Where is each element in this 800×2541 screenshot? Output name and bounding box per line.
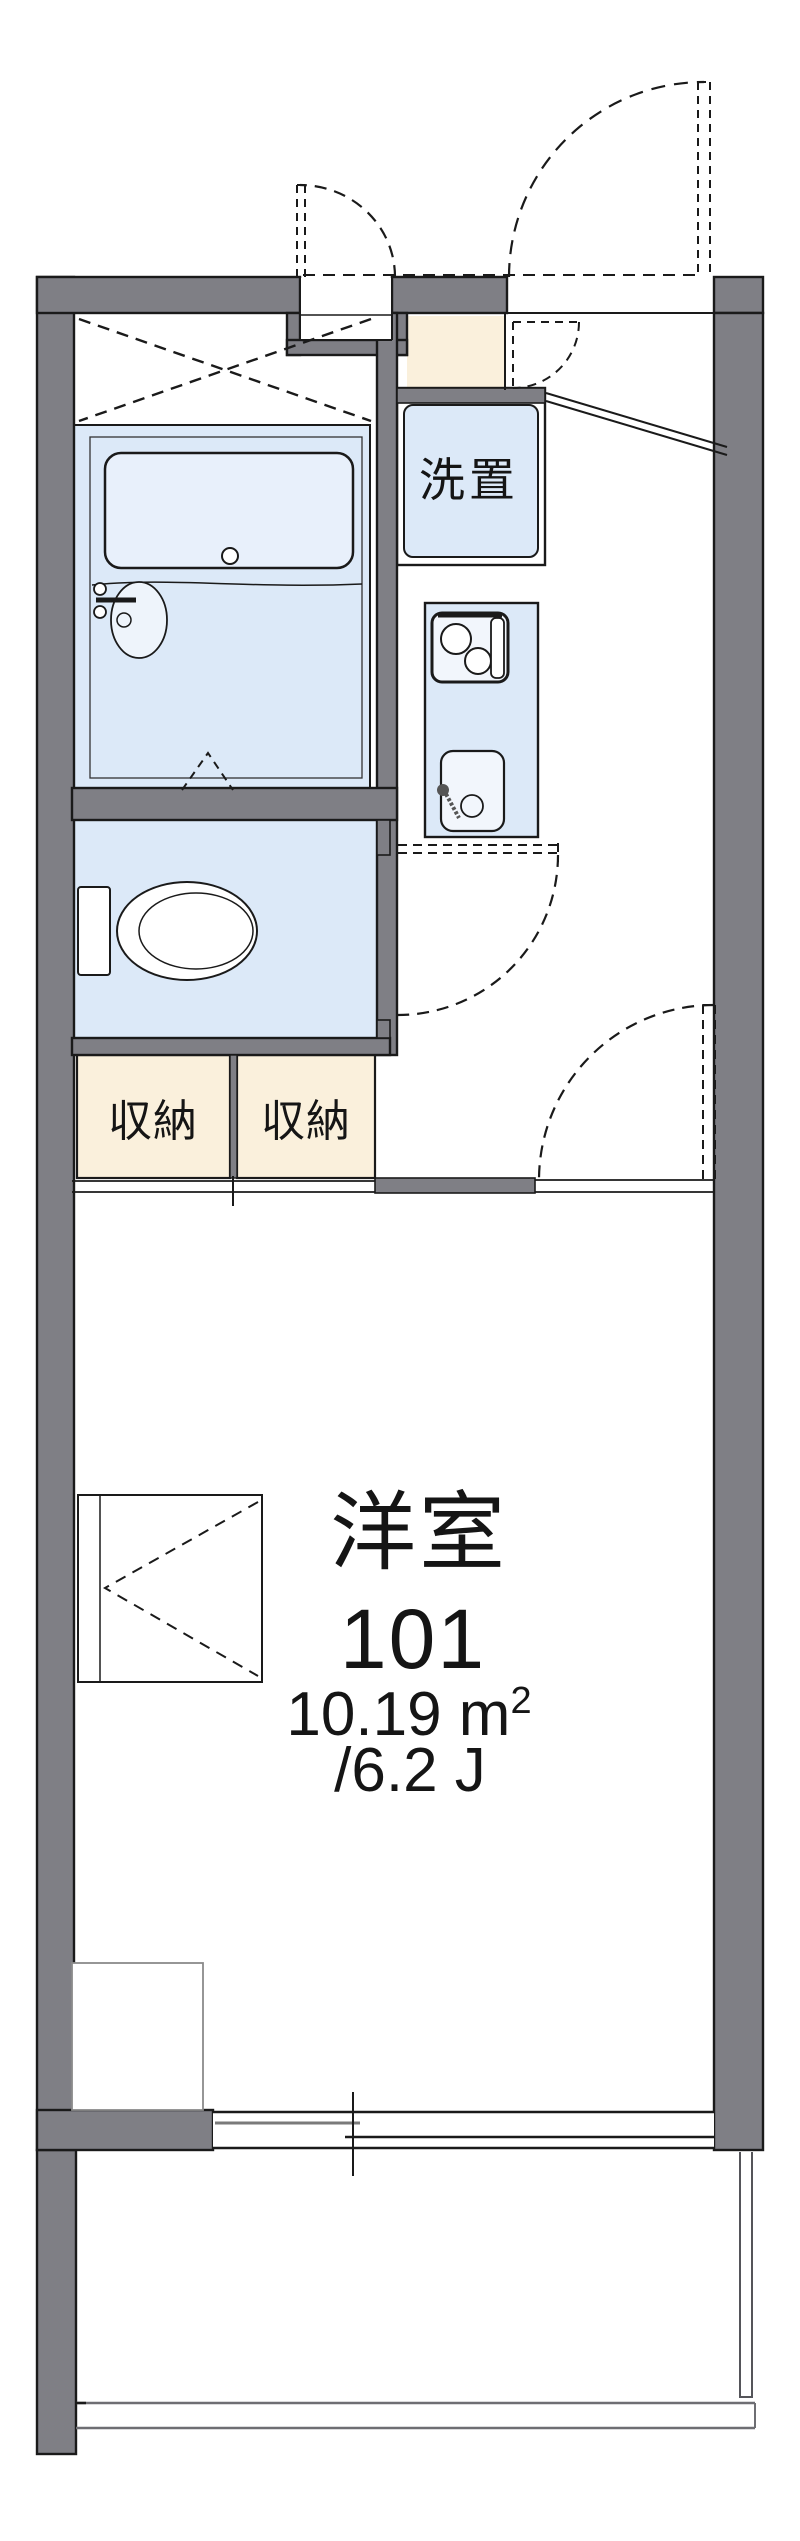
bathtub-drain bbox=[222, 548, 238, 564]
room-number-label: 101 bbox=[340, 1592, 486, 1686]
faucet-knob-top bbox=[94, 583, 106, 595]
wall-top-corner bbox=[714, 277, 763, 313]
wall-top-a bbox=[37, 277, 300, 313]
wall-right bbox=[714, 313, 763, 2150]
toilet-fixtures bbox=[78, 882, 257, 980]
wall-room-top bbox=[375, 1178, 535, 1193]
wall-bath-toilet bbox=[72, 788, 397, 820]
niche-slot bbox=[300, 278, 392, 340]
wall-bottom bbox=[37, 2110, 213, 2150]
kitchen-sink bbox=[441, 751, 504, 831]
storage-label-right: 収納 bbox=[261, 1097, 351, 1146]
stove-burner-small bbox=[465, 648, 491, 674]
room-type-label: 洋室 bbox=[330, 1485, 508, 1581]
wall-toilet-storage bbox=[72, 1038, 390, 1055]
floorplan-page: 洗置 収納 収納 洋室 101 10.19 m2 /6.2 J bbox=[0, 0, 800, 2541]
wall-balcony-left bbox=[37, 2150, 76, 2454]
wall-washer-top-band bbox=[397, 388, 545, 403]
background bbox=[0, 0, 800, 2541]
wall-toilet-jamb-top bbox=[377, 820, 390, 855]
toilet-tank bbox=[78, 887, 110, 975]
stove-burner-large bbox=[441, 624, 471, 654]
washbasin bbox=[111, 582, 167, 658]
stove-grill bbox=[491, 618, 504, 678]
room-area-sqm-superscript: 2 bbox=[510, 1680, 531, 1722]
wall-storage-divider bbox=[230, 1055, 237, 1178]
toilet-bowl bbox=[117, 882, 257, 980]
wall-top-b bbox=[392, 277, 507, 313]
wall-divider-vertical bbox=[377, 313, 397, 1055]
window-band bbox=[213, 2112, 714, 2149]
room-area-tatami: /6.2 J bbox=[334, 1736, 486, 1805]
wall-toilet-jamb-bottom bbox=[377, 1020, 390, 1038]
storage-label-left: 収納 bbox=[108, 1097, 198, 1146]
meter-box-niche bbox=[300, 277, 392, 340]
wall-left bbox=[37, 277, 74, 2150]
washer-label: 洗置 bbox=[419, 454, 519, 506]
floorplan-drawing: 洗置 収納 収納 洋室 101 10.19 m2 /6.2 J bbox=[0, 0, 800, 2541]
furniture-counter-rect bbox=[72, 1963, 203, 2110]
genkan-entry-floor bbox=[407, 316, 505, 390]
faucet-knob-bottom bbox=[94, 606, 106, 618]
